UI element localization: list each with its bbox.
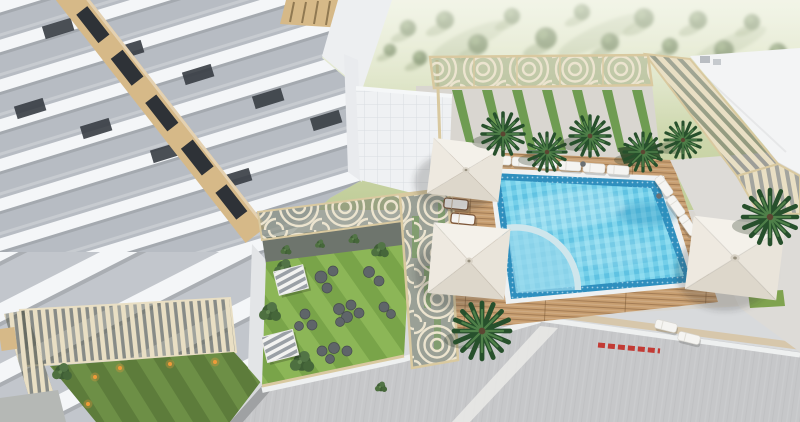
palm-tree: [624, 133, 662, 171]
palm-tree: [570, 116, 610, 156]
umbrella: [428, 222, 511, 299]
side-table: [580, 161, 586, 167]
palm-tree: [743, 190, 797, 244]
wood-panel: [0, 327, 17, 351]
spiral-pergola-top: [430, 55, 652, 88]
palm-tree: [665, 122, 701, 158]
palm-tree: [482, 113, 524, 155]
architectural-render: [0, 0, 800, 422]
side-table: [656, 193, 662, 199]
palm-tree: [528, 133, 566, 171]
rooftop-unit: [700, 56, 710, 63]
rooftop-unit: [713, 59, 721, 65]
palm-tree: [454, 303, 510, 359]
scene: [0, 0, 800, 422]
